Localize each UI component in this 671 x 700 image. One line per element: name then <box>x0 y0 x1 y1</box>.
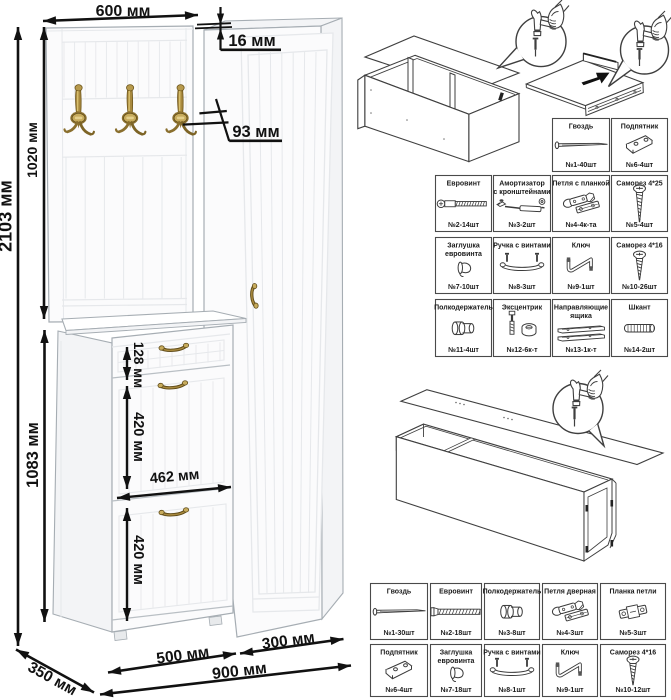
svg-text:Подпятник: Подпятник <box>380 650 418 657</box>
svg-text:Заглушка: Заглушка <box>440 650 473 657</box>
svg-text:Эксцентрик: Эксцентрик <box>502 305 543 312</box>
svg-text:Подпятник: Подпятник <box>621 124 659 131</box>
svg-text:Саморез 4*16: Саморез 4*16 <box>616 243 662 250</box>
svg-text:1020 мм: 1020 мм <box>24 122 40 178</box>
svg-text:№2-18шт: №2-18шт <box>440 629 472 637</box>
svg-text:600 мм: 600 мм <box>96 3 151 20</box>
svg-text:Гвоздь: Гвоздь <box>569 124 594 131</box>
svg-text:№5-3шт: №5-3шт <box>619 629 647 637</box>
svg-text:128 мм: 128 мм <box>131 342 146 388</box>
svg-text:Шкант: Шкант <box>628 305 651 312</box>
svg-text:420 мм: 420 мм <box>130 535 146 585</box>
svg-text:евровинта: евровинта <box>445 251 482 258</box>
svg-text:Амортизатор: Амортизатор <box>499 181 545 188</box>
svg-text:93 мм: 93 мм <box>232 123 279 141</box>
svg-text:№4-3шт: №4-3шт <box>556 629 584 637</box>
svg-text:Петля с планкой: Петля с планкой <box>552 180 609 188</box>
svg-text:Ручка с винтами: Ручка с винтами <box>483 650 540 657</box>
svg-text:Полкодержатель: Полкодержатель <box>434 305 493 312</box>
svg-text:Евровинт: Евровинт <box>447 181 481 188</box>
svg-text:№5-4шт: №5-4шт <box>626 221 654 229</box>
svg-text:Направляющие: Направляющие <box>554 305 608 312</box>
svg-text:№4-4к-та: №4-4к-та <box>565 221 596 229</box>
svg-text:ящика: ящика <box>570 313 592 320</box>
svg-text:1083 мм: 1083 мм <box>24 422 42 488</box>
svg-text:№6-4шт: №6-4шт <box>385 686 413 694</box>
svg-text:№11-4шт: №11-4шт <box>448 346 479 354</box>
svg-text:№10-12шт: №10-12шт <box>616 686 652 694</box>
svg-text:Ключ: Ключ <box>561 650 580 657</box>
svg-text:2103 мм: 2103 мм <box>0 180 16 252</box>
svg-text:№2-14шт: №2-14шт <box>448 221 480 229</box>
svg-text:№6-4шт: №6-4шт <box>626 161 654 169</box>
svg-text:№14-2шт: №14-2шт <box>624 346 656 354</box>
svg-text:№1-30шт: №1-30шт <box>383 629 415 637</box>
svg-text:№8-1шт: №8-1шт <box>498 686 526 694</box>
svg-text:Планка петли: Планка петли <box>609 589 656 596</box>
svg-text:420 мм: 420 мм <box>130 412 146 462</box>
svg-text:№7-10шт: №7-10шт <box>448 283 480 291</box>
svg-text:Ключ: Ключ <box>572 243 591 250</box>
svg-text:Ручка с винтами: Ручка с винтами <box>493 243 550 250</box>
svg-text:Гвоздь: Гвоздь <box>387 589 412 596</box>
svg-text:с кронштейнами: с кронштейнами <box>493 188 550 196</box>
svg-text:№13-1к-т: №13-1к-т <box>565 346 597 354</box>
svg-text:№1-40шт: №1-40шт <box>565 161 597 169</box>
svg-text:№8-3шт: №8-3шт <box>508 283 536 291</box>
svg-text:№9-1шт: №9-1шт <box>567 283 595 291</box>
svg-text:№9-1шт: №9-1шт <box>556 686 584 694</box>
svg-text:№12-6к-т: №12-6к-т <box>506 346 538 354</box>
svg-text:Саморез 4*16: Саморез 4*16 <box>610 650 656 657</box>
svg-text:16 мм: 16 мм <box>228 32 275 50</box>
svg-text:Заглушка: Заглушка <box>447 243 480 250</box>
svg-text:№10-26шт: №10-26шт <box>622 283 658 291</box>
svg-text:Петля дверная: Петля дверная <box>544 589 596 596</box>
svg-text:№3-2шт: №3-2шт <box>508 221 536 229</box>
svg-text:№7-18шт: №7-18шт <box>440 686 472 694</box>
svg-text:Полкодержатель: Полкодержатель <box>483 589 542 596</box>
svg-text:евровинта: евровинта <box>438 658 475 665</box>
svg-text:№3-8шт: №3-8шт <box>498 629 526 637</box>
svg-text:Евровинт: Евровинт <box>439 589 473 596</box>
